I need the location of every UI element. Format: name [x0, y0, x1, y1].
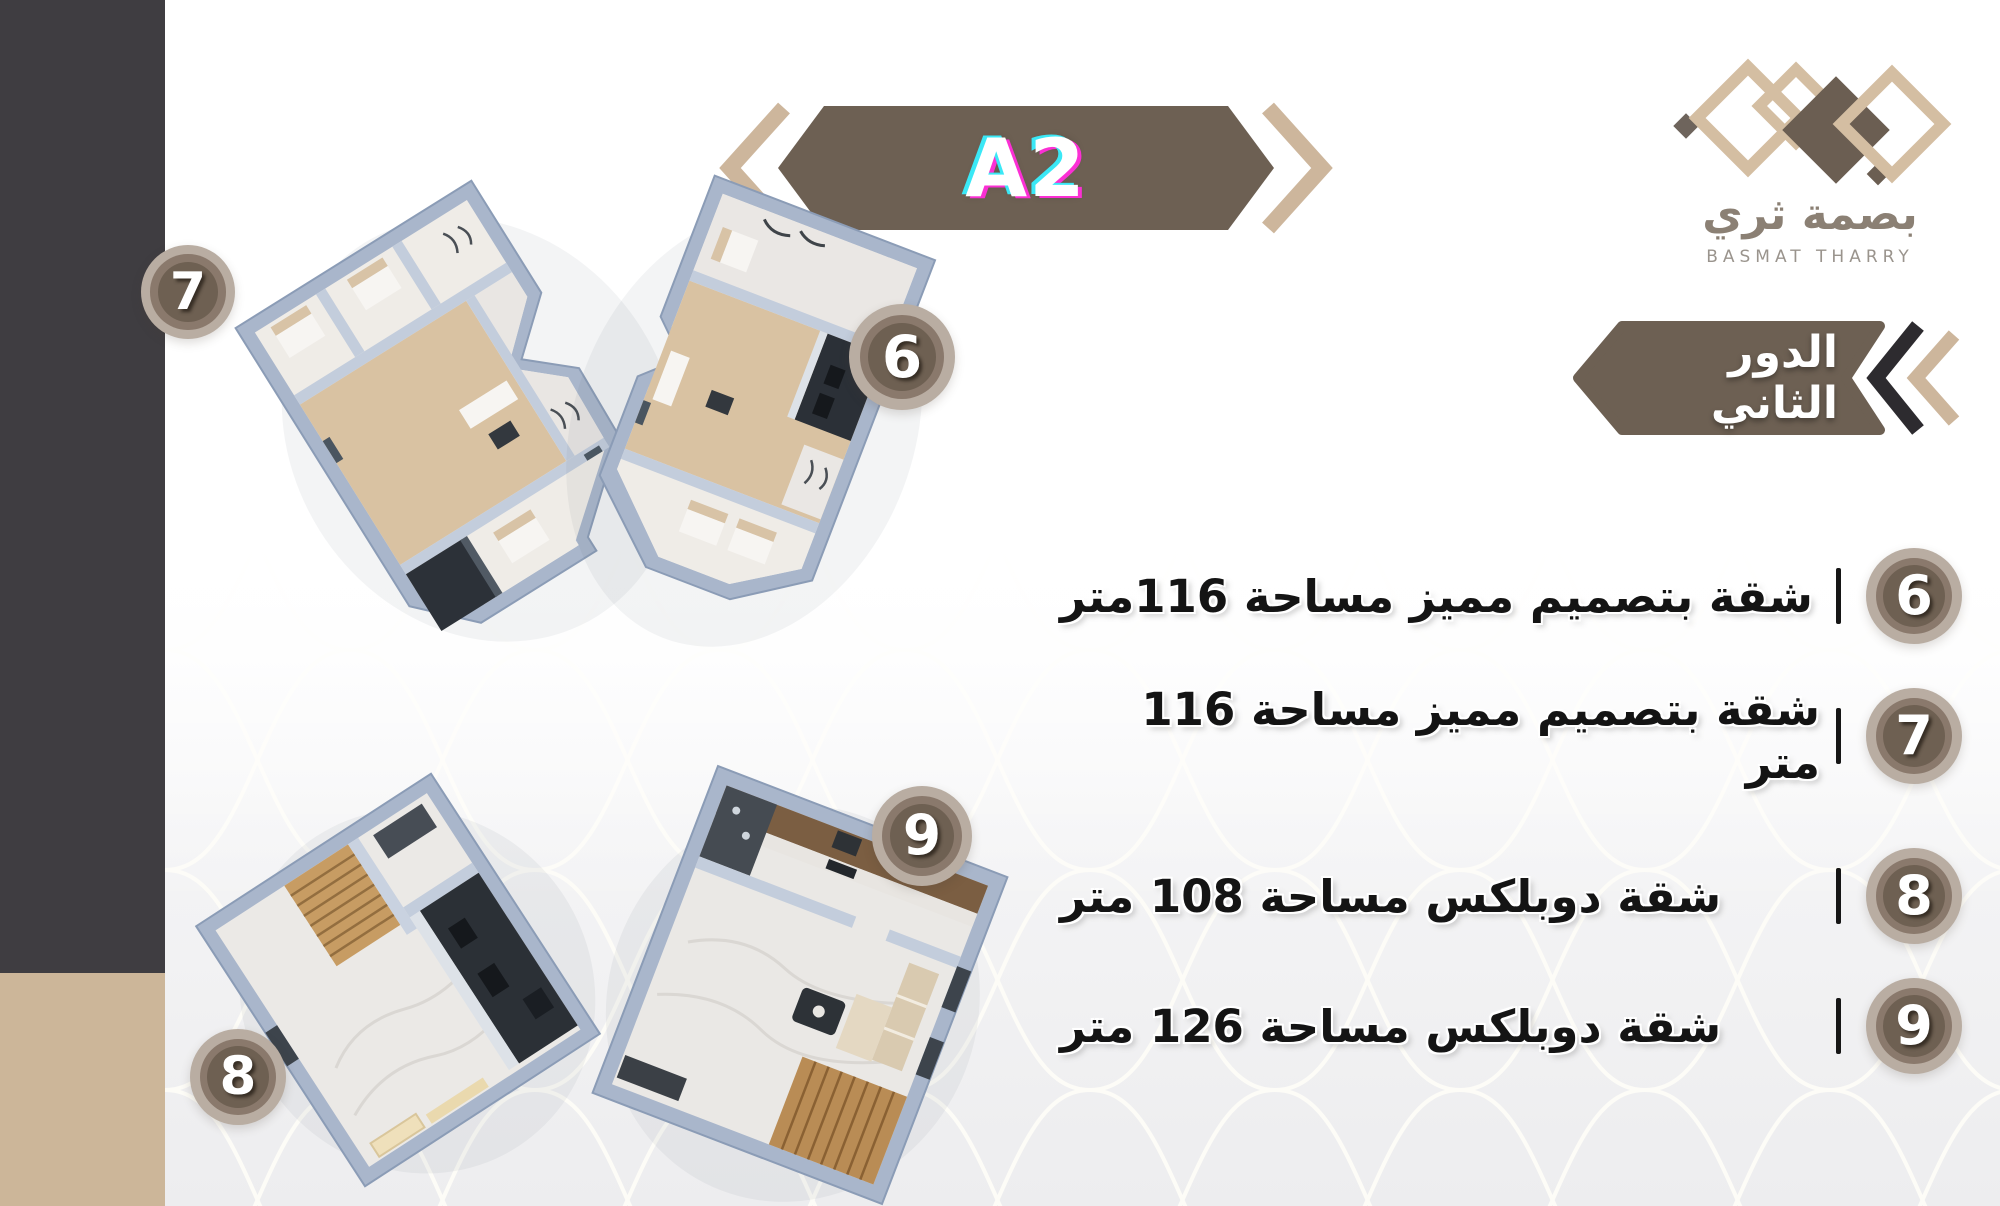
plan-badge-9: 9 — [872, 786, 972, 886]
list-badge-7-number: 7 — [1895, 709, 1933, 763]
list-badge-9: 9 — [1866, 978, 1962, 1074]
plan-badge-7-number: 7 — [170, 266, 206, 318]
tan-chevron-icon — [1916, 335, 1954, 421]
logo-mark-icon — [1660, 56, 1960, 198]
unit-title: A2 — [712, 114, 1340, 222]
list-badge-8-core: 8 — [1883, 865, 1945, 927]
apartment-description-7: شقة بتصميم مميز مساحة 116 متر — [1060, 676, 1820, 796]
list-badge-6: 6 — [1866, 548, 1962, 644]
plan-badge-6: 6 — [849, 304, 955, 410]
plan-badge-8-number: 8 — [220, 1050, 257, 1103]
plan-badge-8: 8 — [190, 1029, 286, 1125]
apartment-description-6: شقة بتصميم مميز مساحة 116متر — [1060, 536, 1820, 656]
list-badge-8-number: 8 — [1895, 869, 1933, 923]
plan-badge-6-number: 6 — [882, 328, 922, 386]
apartment-description-9: شقة دوبلكس مساحة 126 متر — [1060, 966, 1820, 1086]
logo-name-arabic: بصمة ثري — [1660, 188, 1960, 240]
apartment-description-8: شقة دوبلكس مساحة 108 متر — [1060, 836, 1820, 956]
plan-badge-8-core: 8 — [207, 1046, 269, 1108]
list-badge-7-core: 7 — [1883, 705, 1945, 767]
plan-badge-9-number: 9 — [903, 808, 941, 863]
sidebar-dark-block — [0, 0, 165, 973]
plan-badge-8-ring: 8 — [200, 1039, 277, 1116]
slide: A2 بصمة ثري BASMAT THARRY الدور الثاني — [0, 0, 2000, 1206]
floor-banner-label: الدور الثاني — [1588, 322, 1838, 434]
list-badge-9-core: 9 — [1883, 995, 1945, 1057]
list-badge-8-ring: 8 — [1876, 858, 1953, 935]
list-badge-8: 8 — [1866, 848, 1962, 944]
plan-badge-7-core: 7 — [158, 262, 219, 323]
logo-name-english: BASMAT THARRY — [1648, 244, 1972, 270]
list-badge-7: 7 — [1866, 688, 1962, 784]
plan-badge-7: 7 — [141, 245, 235, 339]
list-badge-7-ring: 7 — [1876, 698, 1953, 775]
separator-bar-8 — [1836, 868, 1841, 924]
plan-badge-9-core: 9 — [890, 804, 955, 869]
plan-badge-7-ring: 7 — [150, 254, 225, 329]
plan-badge-6-ring: 6 — [860, 315, 945, 400]
list-badge-6-core: 6 — [1883, 565, 1945, 627]
list-badge-9-ring: 9 — [1876, 988, 1953, 1065]
sidebar-tan-block — [0, 973, 165, 1206]
list-badge-9-number: 9 — [1895, 999, 1933, 1053]
plan-badge-6-core: 6 — [868, 323, 937, 392]
separator-bar-7 — [1836, 708, 1841, 764]
separator-bar-6 — [1836, 568, 1841, 624]
list-badge-6-number: 6 — [1895, 569, 1933, 623]
separator-bar-9 — [1836, 998, 1841, 1054]
list-badge-6-ring: 6 — [1876, 558, 1953, 635]
plan-badge-9-ring: 9 — [882, 796, 962, 876]
